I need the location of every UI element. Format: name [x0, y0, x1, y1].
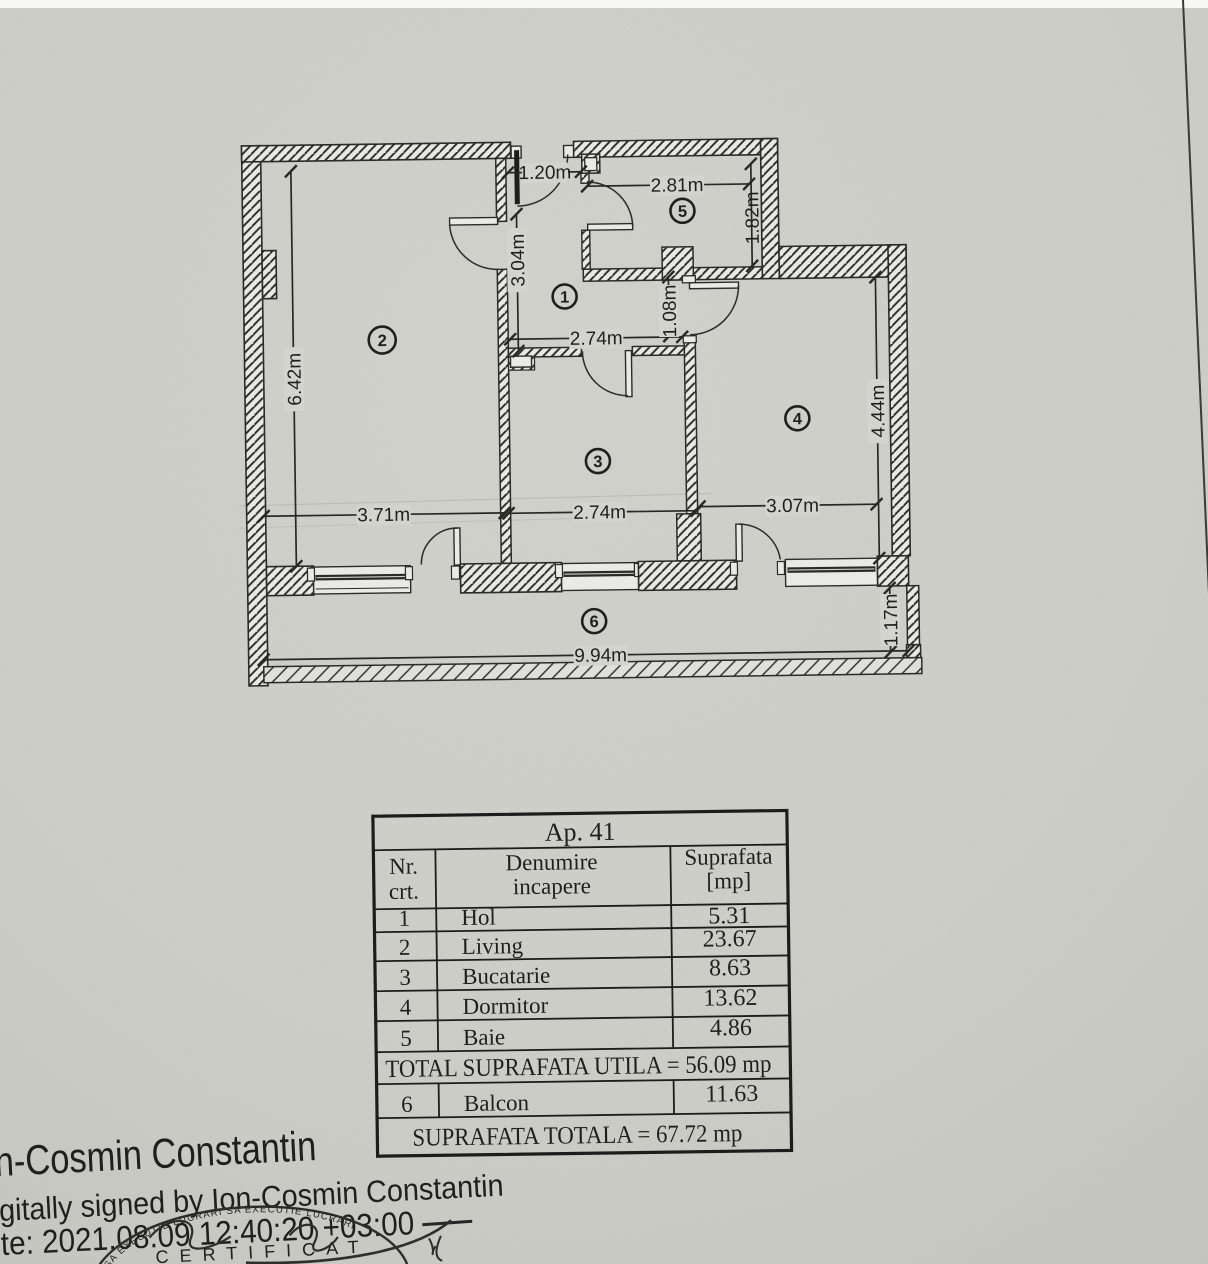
- svg-text:4: 4: [400, 995, 412, 1020]
- svg-text:Living: Living: [462, 933, 524, 959]
- svg-text:5: 5: [678, 203, 687, 221]
- svg-text:2.74m: 2.74m: [570, 328, 623, 350]
- svg-text:2: 2: [378, 332, 387, 350]
- svg-text:6: 6: [589, 613, 598, 631]
- svg-text:Hol: Hol: [461, 905, 496, 930]
- svg-text:5: 5: [400, 1026, 412, 1051]
- svg-text:6.42m: 6.42m: [284, 353, 306, 406]
- svg-text:Ap. 41: Ap. 41: [545, 817, 616, 847]
- svg-text:1.20m: 1.20m: [518, 162, 571, 184]
- svg-text:4.44m: 4.44m: [868, 385, 890, 438]
- svg-text:13.62: 13.62: [703, 985, 757, 1012]
- svg-text:8.63: 8.63: [709, 955, 751, 982]
- svg-text:23.67: 23.67: [702, 926, 756, 953]
- svg-text:Bucatarie: Bucatarie: [462, 963, 550, 989]
- svg-text:3: 3: [593, 453, 602, 471]
- svg-text:crt.: crt.: [389, 879, 419, 904]
- svg-text:Suprafata: Suprafata: [684, 844, 772, 870]
- svg-text:Dormitor: Dormitor: [462, 993, 548, 1019]
- svg-text:[mp]: [mp]: [706, 868, 751, 894]
- svg-text:1.08m: 1.08m: [659, 284, 681, 337]
- svg-text:1: 1: [398, 906, 410, 931]
- svg-text:2.74m: 2.74m: [573, 502, 626, 524]
- svg-text:1.17m: 1.17m: [881, 593, 903, 646]
- svg-text:3.07m: 3.07m: [766, 495, 819, 517]
- svg-text:Baie: Baie: [463, 1024, 506, 1050]
- svg-text:1.82m: 1.82m: [742, 191, 764, 244]
- svg-text:SUPRAFATA TOTALA = 67.72 mp: SUPRAFATA TOTALA = 67.72 mp: [412, 1120, 742, 1152]
- svg-text:Denumire: Denumire: [505, 849, 597, 875]
- svg-text:2.81m: 2.81m: [651, 175, 704, 197]
- svg-text:2: 2: [399, 935, 411, 960]
- svg-text:Balcon: Balcon: [464, 1090, 530, 1116]
- svg-text:incapere: incapere: [513, 873, 591, 899]
- svg-text:3.04m: 3.04m: [508, 234, 530, 287]
- svg-text:3.71m: 3.71m: [357, 505, 410, 527]
- svg-text:1: 1: [560, 288, 569, 306]
- svg-text:11.63: 11.63: [705, 1081, 758, 1108]
- svg-text:6: 6: [401, 1092, 413, 1117]
- svg-text:Nr.: Nr.: [389, 854, 418, 879]
- svg-text:4.86: 4.86: [710, 1015, 752, 1042]
- svg-text:TOTAL SUPRAFATA UTILA = 56.09: TOTAL SUPRAFATA UTILA = 56.09 mp: [385, 1051, 771, 1083]
- svg-text:4: 4: [793, 410, 803, 428]
- svg-text:9.94m: 9.94m: [574, 645, 627, 667]
- svg-text:3: 3: [399, 965, 411, 990]
